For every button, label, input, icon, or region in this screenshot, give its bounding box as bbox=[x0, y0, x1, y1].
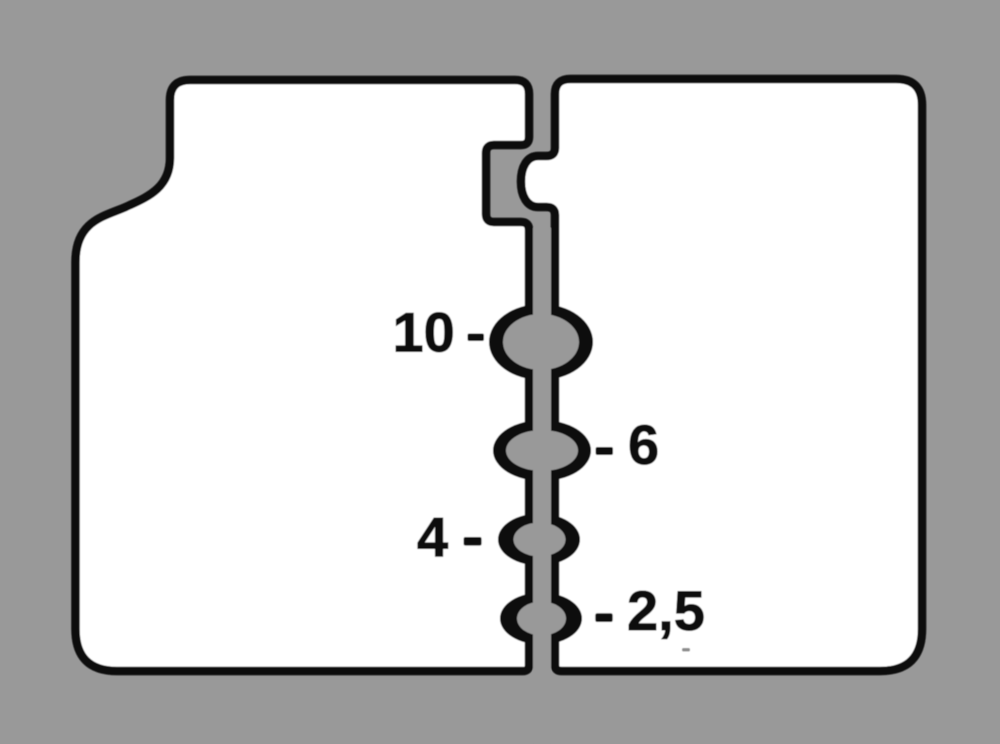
svg-text:4: 4 bbox=[417, 506, 448, 569]
svg-text:6: 6 bbox=[628, 413, 659, 476]
svg-text:2,5: 2,5 bbox=[627, 579, 705, 642]
svg-text:10: 10 bbox=[393, 301, 455, 364]
